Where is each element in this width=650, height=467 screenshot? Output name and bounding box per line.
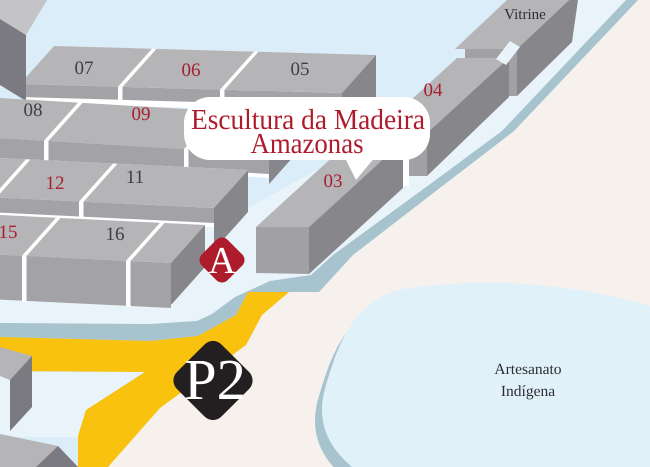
svg-text:08: 08 xyxy=(24,100,43,121)
svg-text:03: 03 xyxy=(324,171,343,192)
svg-text:Artesanato: Artesanato xyxy=(494,361,561,378)
svg-text:07: 07 xyxy=(75,58,94,79)
svg-text:09: 09 xyxy=(132,104,151,125)
svg-text:Vitrine: Vitrine xyxy=(504,7,546,23)
svg-text:11: 11 xyxy=(126,167,144,188)
svg-text:04: 04 xyxy=(424,80,444,101)
svg-text:05: 05 xyxy=(291,59,310,80)
svg-text:Amazonas: Amazonas xyxy=(251,128,364,160)
svg-text:06: 06 xyxy=(182,60,201,81)
svg-text:P2: P2 xyxy=(184,347,246,412)
svg-text:Indígena: Indígena xyxy=(501,383,555,400)
svg-text:12: 12 xyxy=(46,173,65,194)
svg-text:A: A xyxy=(208,240,236,282)
svg-text:16: 16 xyxy=(106,224,125,245)
svg-text:15: 15 xyxy=(0,222,18,243)
